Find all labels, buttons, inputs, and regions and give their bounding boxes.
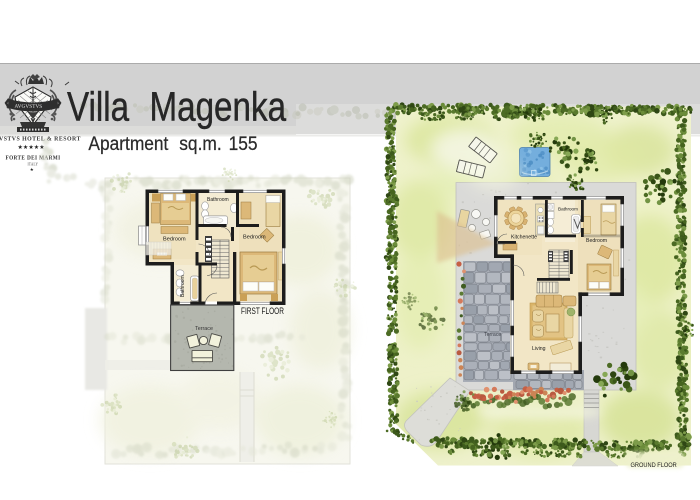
- svg-text:Terrace: Terrace: [195, 326, 213, 332]
- svg-text:Magenka: Magenka: [149, 83, 286, 129]
- svg-text:Terrace: Terrace: [484, 332, 501, 338]
- svg-text:Bedroom: Bedroom: [163, 237, 186, 243]
- svg-text:★★★★★: ★★★★★: [18, 144, 45, 151]
- svg-text:Bedroom: Bedroom: [243, 235, 266, 241]
- svg-text:★: ★: [30, 167, 34, 172]
- svg-text:Villa: Villa: [67, 83, 129, 129]
- svg-text:Kitchenette: Kitchenette: [511, 235, 537, 241]
- svg-text:FIRST FLOOR: FIRST FLOOR: [241, 306, 284, 316]
- svg-text:Living: Living: [532, 346, 546, 352]
- svg-text:sq.m.: sq.m.: [179, 132, 221, 154]
- svg-text:Bedroom: Bedroom: [586, 238, 607, 244]
- svg-text:GROUND FLOOR: GROUND FLOOR: [631, 462, 678, 470]
- svg-text:VSTVS HOTEL & RESORT: VSTVS HOTEL & RESORT: [0, 137, 81, 143]
- svg-text:FORTE DEI MARMI: FORTE DEI MARMI: [6, 155, 61, 162]
- svg-text:Bathroom: Bathroom: [207, 197, 229, 203]
- svg-text:Bathroom: Bathroom: [558, 207, 578, 212]
- svg-text:155: 155: [229, 132, 258, 154]
- svg-text:Bathroom: Bathroom: [180, 275, 186, 297]
- svg-text:Apartment: Apartment: [88, 132, 168, 154]
- svg-text:AVGVSTVS: AVGVSTVS: [14, 104, 42, 110]
